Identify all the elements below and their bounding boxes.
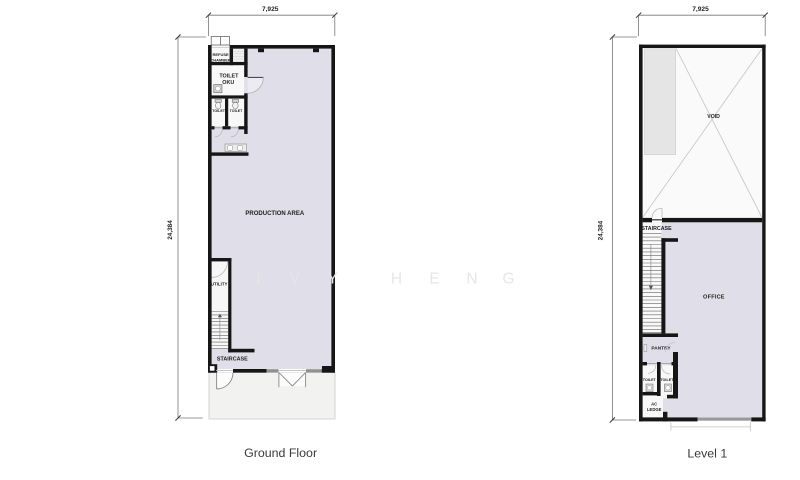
svg-text:7,925: 7,925 <box>262 6 279 13</box>
svg-text:H: H <box>391 270 402 287</box>
svg-text:Level 1: Level 1 <box>687 446 727 460</box>
svg-text:24,384: 24,384 <box>597 220 604 240</box>
svg-text:OKU: OKU <box>222 80 234 86</box>
svg-text:AC: AC <box>651 402 657 407</box>
svg-text:E: E <box>429 270 439 287</box>
svg-text:TOILET: TOILET <box>230 109 244 113</box>
svg-text:TOILET: TOILET <box>212 109 226 113</box>
svg-text:REFUSE: REFUSE <box>212 52 229 57</box>
svg-text:24,384: 24,384 <box>167 220 174 240</box>
svg-text:I: I <box>256 270 260 287</box>
svg-text:TOILET: TOILET <box>643 378 657 382</box>
svg-text:OFFICE: OFFICE <box>703 294 725 300</box>
svg-text:TOILET: TOILET <box>219 73 239 79</box>
svg-text:LEDGE: LEDGE <box>647 407 662 412</box>
svg-text:V: V <box>289 270 300 287</box>
svg-text:CHAMBER: CHAMBER <box>210 58 231 63</box>
svg-text:UTILITY: UTILITY <box>211 281 228 286</box>
svg-text:PANTRY: PANTRY <box>651 346 671 352</box>
svg-text:TOILET: TOILET <box>660 378 674 382</box>
svg-text:VOID: VOID <box>707 114 720 120</box>
svg-text:PRODUCTION AREA: PRODUCTION AREA <box>245 211 304 217</box>
svg-text:7,925: 7,925 <box>692 6 709 13</box>
svg-text:G: G <box>502 270 514 287</box>
svg-text:STAIRCASE: STAIRCASE <box>641 226 672 232</box>
svg-text:Y: Y <box>327 270 337 287</box>
svg-text:N: N <box>466 270 477 287</box>
svg-text:Ground Floor: Ground Floor <box>244 446 317 460</box>
svg-text:STAIRCASE: STAIRCASE <box>217 356 248 362</box>
